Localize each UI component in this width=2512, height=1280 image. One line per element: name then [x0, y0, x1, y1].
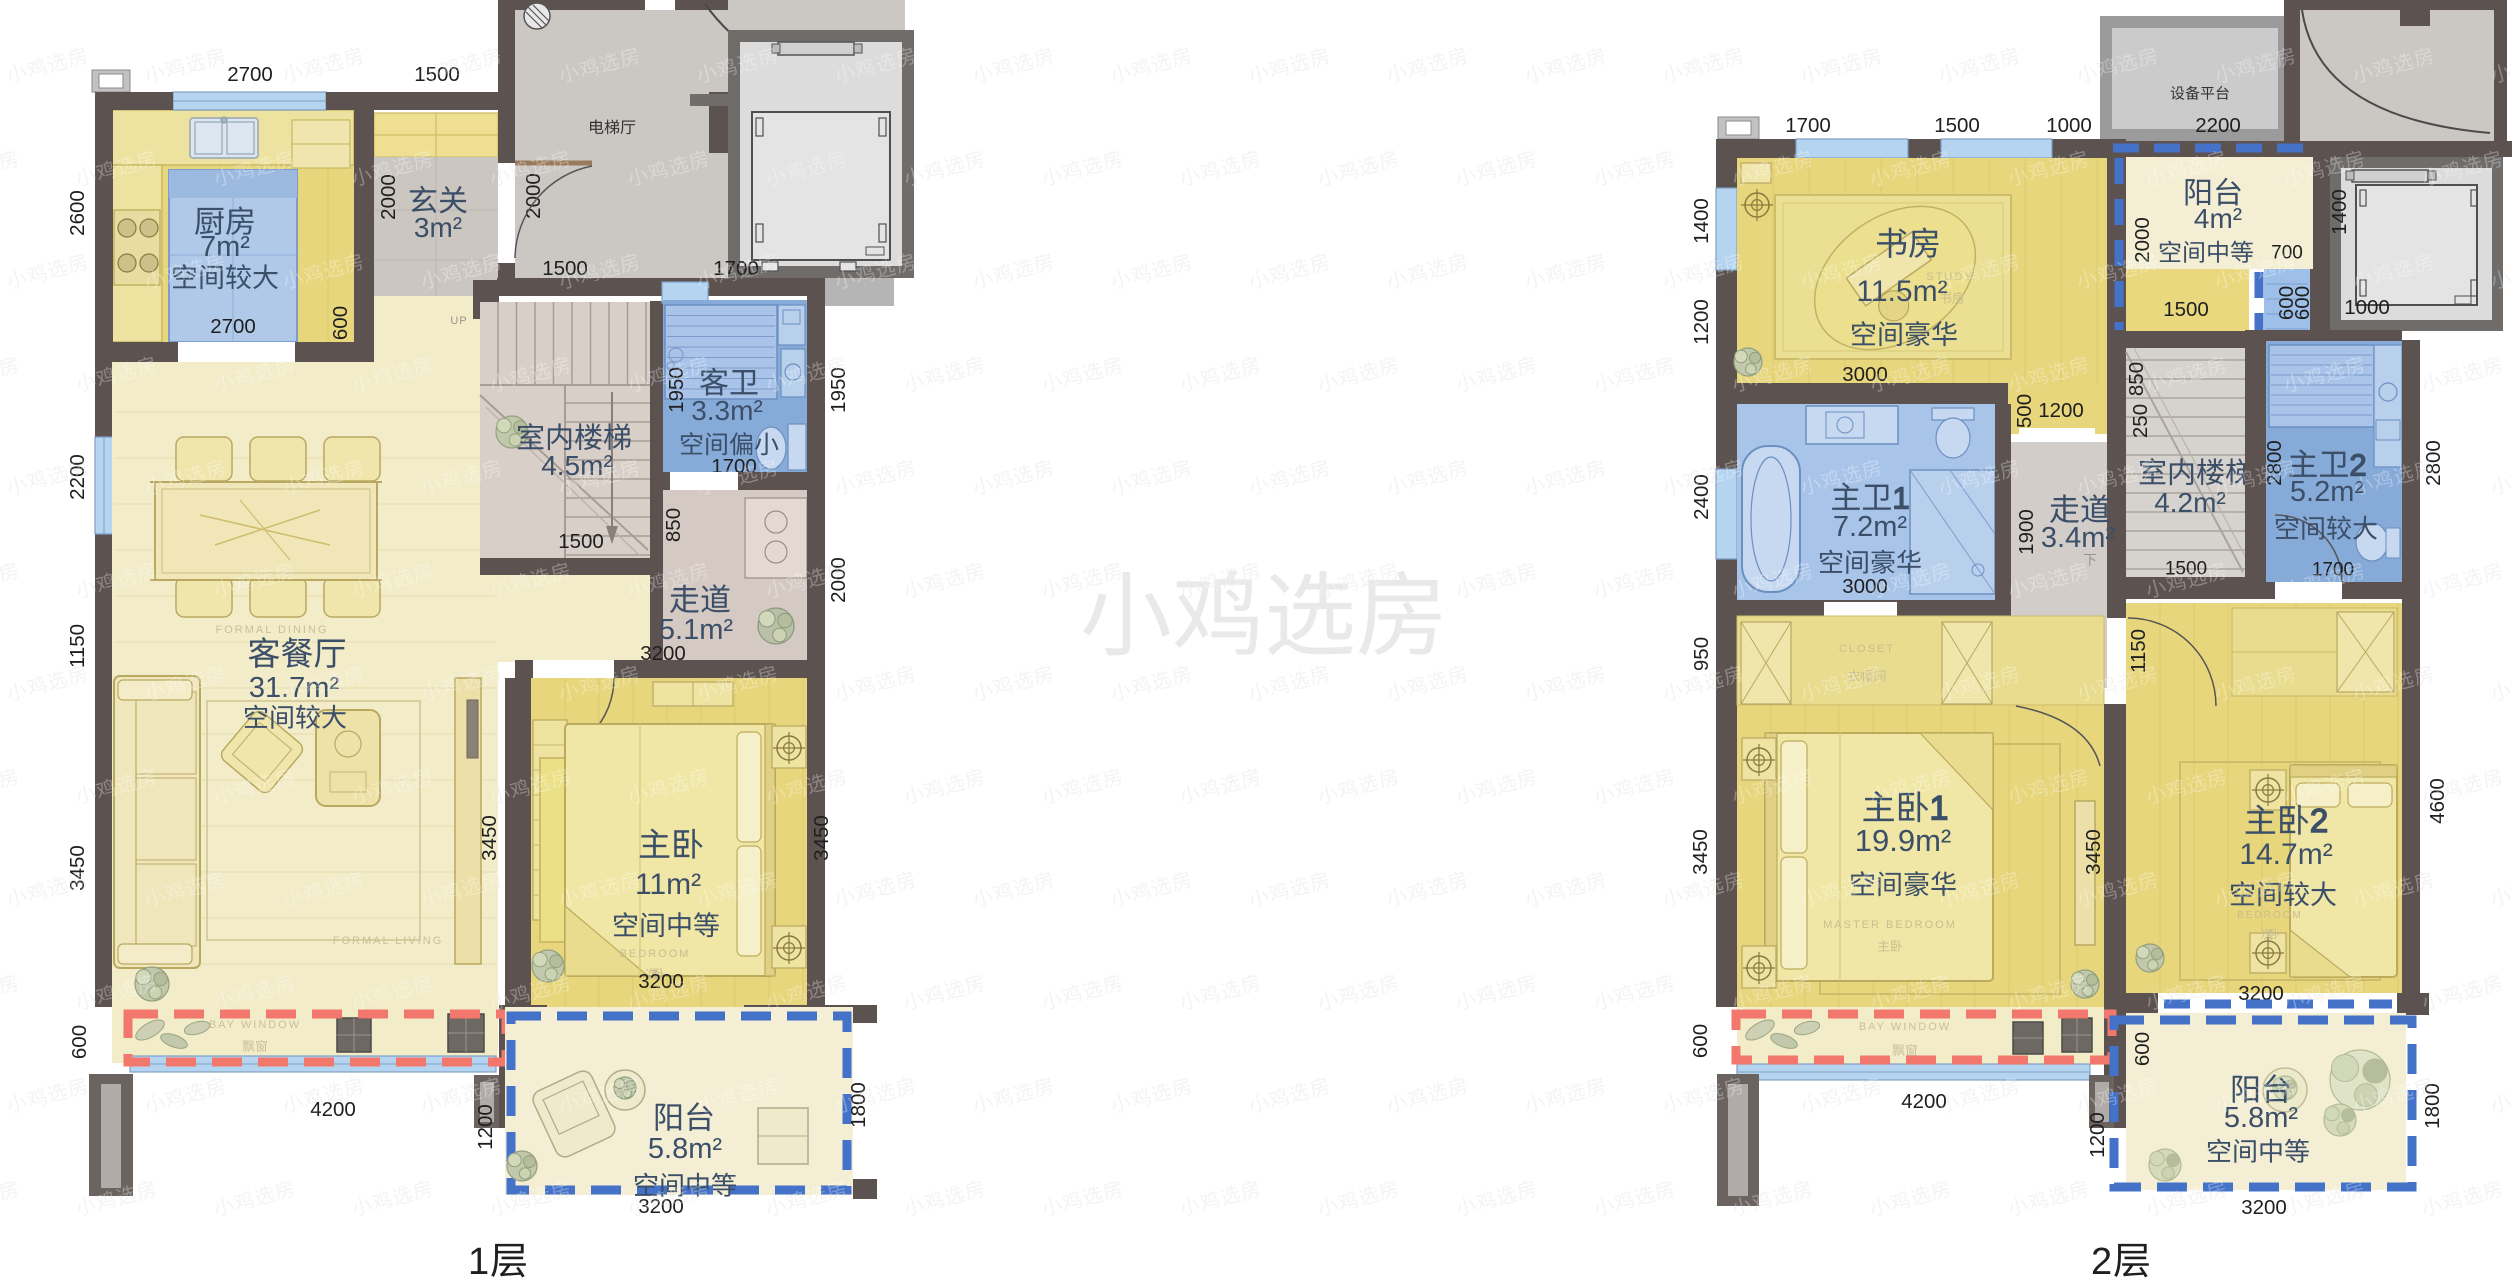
svg-text:11m²: 11m²	[635, 868, 701, 901]
svg-text:2: 2	[2310, 802, 2328, 839]
svg-text:1400: 1400	[1690, 198, 1713, 244]
svg-text:BAY WINDOW: BAY WINDOW	[209, 1019, 301, 1031]
svg-text:FORMAL LIVING: FORMAL LIVING	[333, 935, 444, 947]
svg-text:1200: 1200	[2086, 1112, 2109, 1158]
svg-text:1400: 1400	[2328, 189, 2351, 235]
svg-text:1500: 1500	[1934, 114, 1980, 137]
svg-text:3450: 3450	[810, 815, 833, 861]
svg-text:3200: 3200	[2241, 1196, 2287, 1219]
svg-text:1700: 1700	[1785, 114, 1831, 137]
svg-text:2800: 2800	[2422, 440, 2445, 486]
svg-text:600: 600	[329, 306, 352, 340]
svg-text:11.5m²: 11.5m²	[1856, 275, 1947, 308]
svg-text:1500: 1500	[414, 63, 460, 86]
svg-text:700: 700	[2271, 243, 2303, 264]
svg-text:1150: 1150	[66, 624, 89, 668]
svg-text:14.7m²: 14.7m²	[2239, 838, 2332, 871]
svg-text:19.9m²: 19.9m²	[1855, 823, 1951, 858]
svg-text:600: 600	[1689, 1024, 1712, 1058]
svg-text:MASTER BEDROOM: MASTER BEDROOM	[1823, 919, 1957, 931]
svg-text:下: 下	[2083, 552, 2097, 568]
svg-text:5.8m²: 5.8m²	[2224, 1102, 2298, 1134]
svg-text:1000: 1000	[2344, 296, 2390, 319]
svg-text:250: 250	[2129, 404, 2152, 438]
svg-text:3200: 3200	[638, 1195, 684, 1218]
svg-text:3.3m²: 3.3m²	[691, 395, 763, 426]
svg-text:BAY WINDOW: BAY WINDOW	[1859, 1021, 1951, 1033]
svg-text:3000: 3000	[1842, 363, 1888, 386]
svg-text:2000: 2000	[522, 173, 545, 219]
svg-text:4600: 4600	[2426, 778, 2449, 824]
svg-text:500: 500	[2013, 394, 2036, 428]
svg-text:3m²: 3m²	[414, 212, 462, 243]
svg-text:7.2m²: 7.2m²	[1833, 511, 1907, 543]
svg-text:600: 600	[2131, 1032, 2154, 1066]
svg-text:1500: 1500	[2163, 298, 2209, 321]
svg-text:1150: 1150	[2127, 629, 2150, 673]
svg-text:3200: 3200	[638, 970, 684, 993]
svg-text:1900: 1900	[2015, 509, 2038, 555]
svg-text:3.4m²: 3.4m²	[2041, 522, 2115, 554]
svg-text:4.5m²: 4.5m²	[541, 450, 613, 481]
svg-text:3450: 3450	[1689, 829, 1712, 875]
svg-text:850: 850	[2125, 362, 2148, 396]
svg-text:4200: 4200	[1901, 1090, 1947, 1113]
svg-text:1200: 1200	[1690, 299, 1713, 345]
svg-text:2600: 2600	[66, 190, 89, 236]
svg-text:2200: 2200	[2195, 114, 2241, 137]
svg-text:600: 600	[2291, 286, 2314, 320]
svg-text:1200: 1200	[2038, 399, 2084, 422]
svg-text:950: 950	[1690, 637, 1713, 671]
svg-text:UP: UP	[450, 315, 467, 327]
svg-text:BEDROOM: BEDROOM	[2237, 910, 2303, 921]
svg-text:2700: 2700	[227, 63, 273, 86]
svg-text:2: 2	[2091, 1241, 2112, 1280]
svg-text:4.2m²: 4.2m²	[2154, 487, 2226, 518]
svg-text:1200: 1200	[474, 1104, 497, 1150]
svg-text:1: 1	[468, 1241, 489, 1280]
svg-text:CLOSET: CLOSET	[1839, 643, 1895, 655]
svg-text:2000: 2000	[2131, 217, 2154, 263]
svg-text:FORMAL DINING: FORMAL DINING	[216, 624, 329, 636]
svg-text:1: 1	[1930, 790, 1949, 828]
svg-text:BEDROOM: BEDROOM	[620, 948, 691, 960]
svg-text:4m²: 4m²	[2194, 203, 2242, 234]
svg-text:5.8m²: 5.8m²	[648, 1133, 722, 1165]
svg-text:1500: 1500	[558, 530, 604, 553]
svg-text:3450: 3450	[2082, 829, 2105, 875]
svg-text:2200: 2200	[66, 454, 89, 500]
svg-text:850: 850	[662, 508, 685, 542]
svg-text:5.2m²: 5.2m²	[2290, 476, 2364, 508]
svg-text:3450: 3450	[478, 815, 501, 861]
svg-text:600: 600	[68, 1025, 91, 1059]
svg-text:1000: 1000	[2046, 114, 2092, 137]
svg-text:2000: 2000	[377, 174, 400, 220]
svg-text:2700: 2700	[210, 315, 256, 338]
